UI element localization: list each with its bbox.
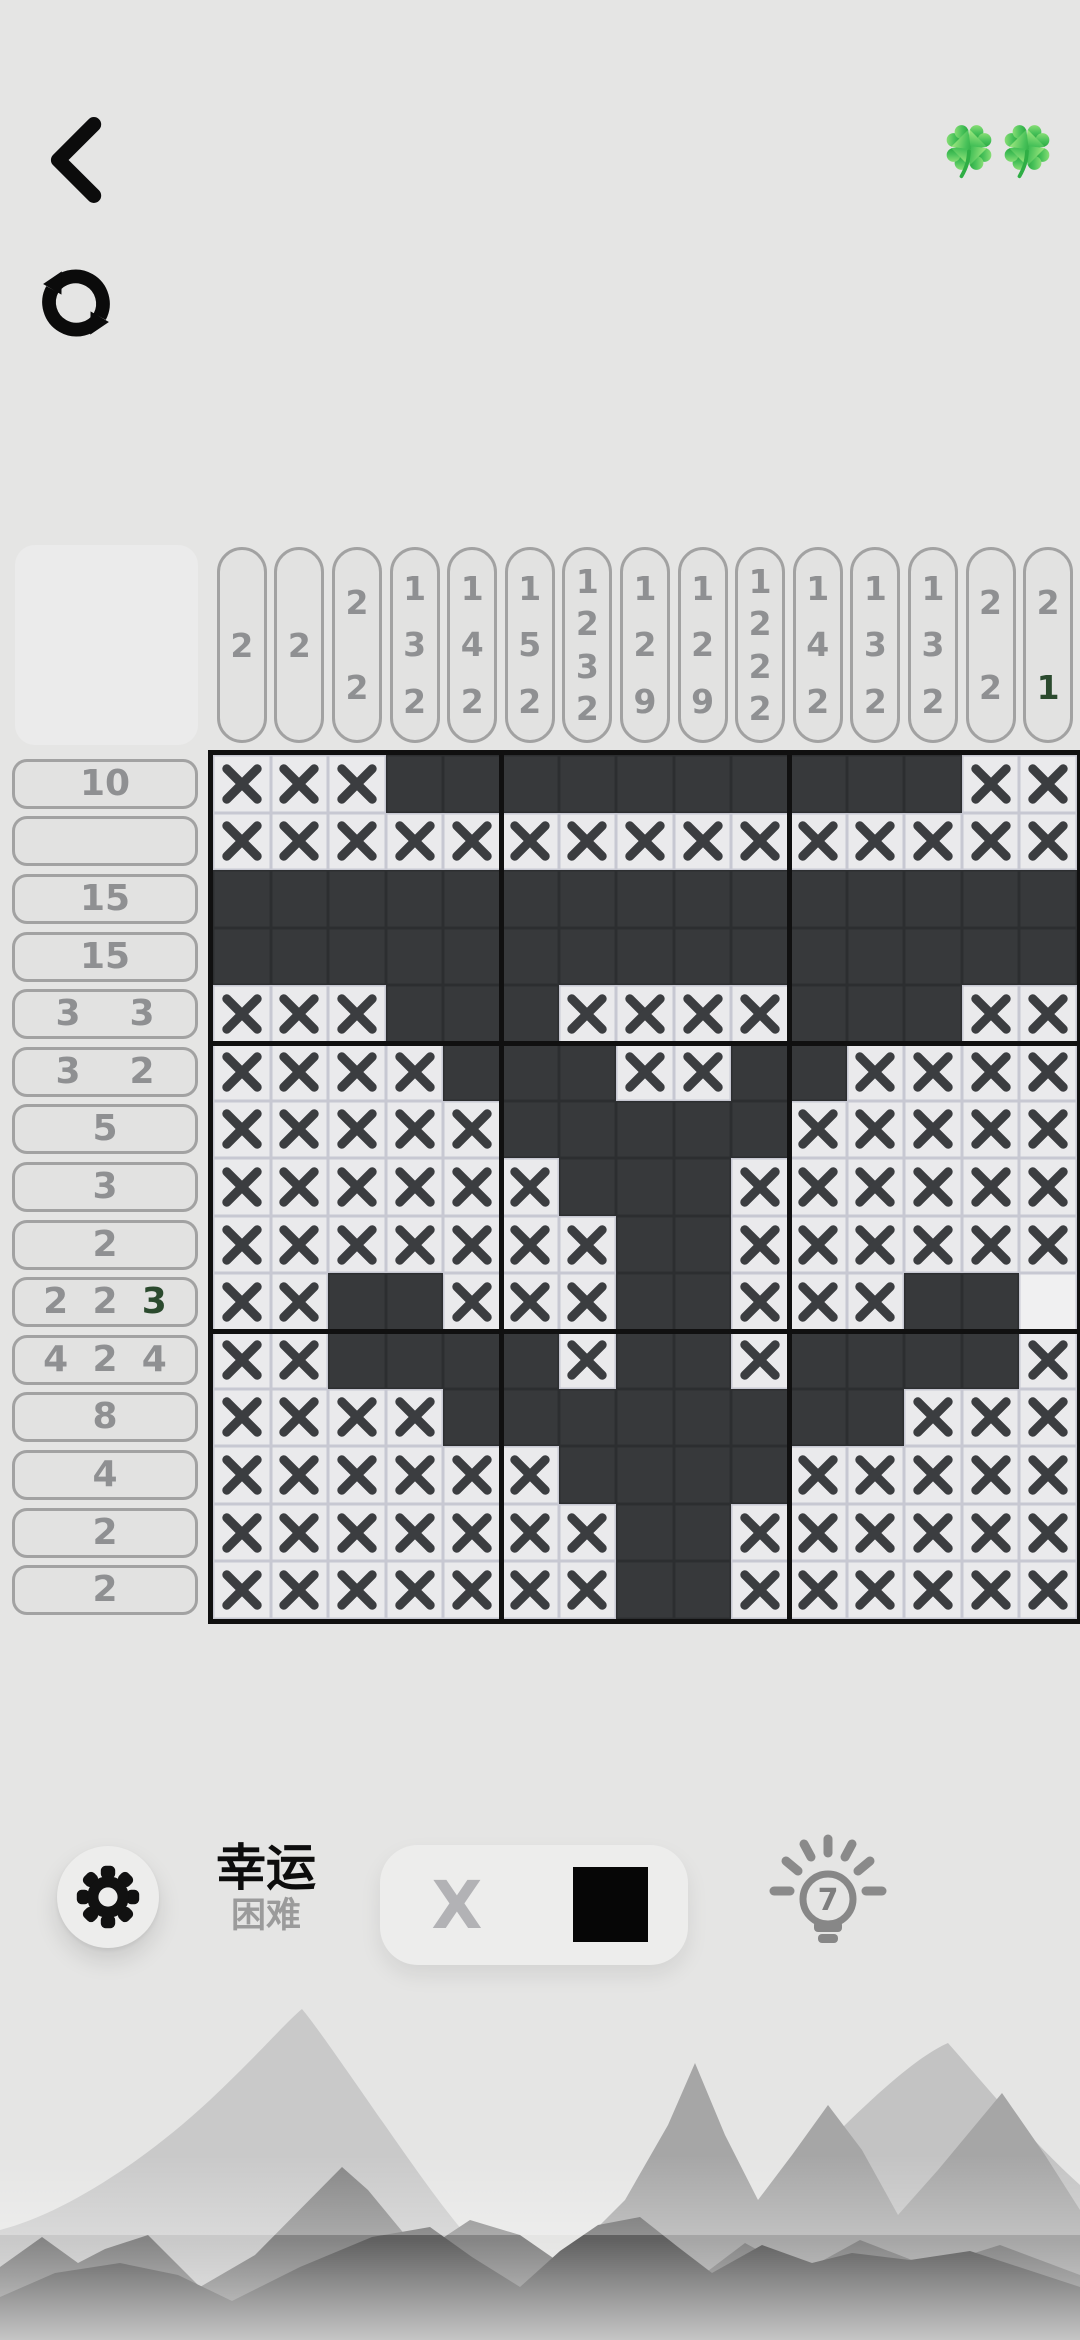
grid-cell-r13c14[interactable] [962,1446,1020,1504]
grid-cell-r1c4[interactable] [386,755,444,813]
grid-cell-r2c7[interactable] [559,813,617,871]
clue-number: 1 [518,572,541,605]
grid-cell-r1c2[interactable] [271,755,329,813]
grid-cell-r2c10[interactable] [731,813,789,871]
game-screen: 2222132142152123212912912221421321322221… [0,0,1080,2340]
x-mark-icon [1024,1566,1072,1614]
grid-cell-r10c12[interactable] [847,1273,905,1331]
grid-cell-r14c4[interactable] [386,1504,444,1562]
grid-cell-r3c14[interactable] [962,870,1020,928]
back-button[interactable] [40,116,110,206]
x-mark-icon [275,990,323,1038]
grid-cell-r8c1[interactable] [213,1158,271,1216]
x-mark-icon [506,817,554,865]
x-mark-icon [333,1451,381,1499]
grid-cell-r6c11[interactable] [789,1043,847,1101]
grid-cell-r1c8[interactable] [616,755,674,813]
x-mark-icon [448,1509,496,1557]
grid-cell-r10c11[interactable] [789,1273,847,1331]
grid-cell-r6c15[interactable] [1019,1043,1077,1101]
grid-cell-r14c11[interactable] [789,1504,847,1562]
grid-cell-r12c7[interactable] [559,1389,617,1447]
grid-cell-r8c3[interactable] [328,1158,386,1216]
grid-cell-r13c8[interactable] [616,1446,674,1504]
grid-cell-r10c14[interactable] [962,1273,1020,1331]
grid-cell-r14c7[interactable] [559,1504,617,1562]
grid-cell-r8c11[interactable] [789,1158,847,1216]
grid-cell-r6c9[interactable] [674,1043,732,1101]
x-mark-icon [448,1566,496,1614]
grid-cell-r7c8[interactable] [616,1101,674,1159]
grid-cell-r1c15[interactable] [1019,755,1077,813]
x-mark-icon [794,1509,842,1557]
grid-cell-r6c10[interactable] [731,1043,789,1101]
grid-cell-r4c14[interactable] [962,928,1020,986]
grid-cell-r12c11[interactable] [789,1389,847,1447]
grid-cell-r2c1[interactable] [213,813,271,871]
x-mark-icon [506,1163,554,1211]
grid-cell-r11c3[interactable] [328,1331,386,1389]
block-divider-v1 [499,755,504,1619]
grid-cell-r1c10[interactable] [731,755,789,813]
grid-cell-r5c2[interactable] [271,985,329,1043]
grid-cell-r4c10[interactable] [731,928,789,986]
grid-cell-r1c11[interactable] [789,755,847,813]
x-mark-icon [967,1451,1015,1499]
grid-cell-r7c5[interactable] [443,1101,501,1159]
grid-cell-r5c14[interactable] [962,985,1020,1043]
grid-cell-r15c4[interactable] [386,1561,444,1619]
grid-cell-r11c11[interactable] [789,1331,847,1389]
grid-cell-r10c10[interactable] [731,1273,789,1331]
grid-cell-r7c6[interactable] [501,1101,559,1159]
grid-cell-r10c15[interactable] [1019,1273,1077,1331]
grid-cell-r9c4[interactable] [386,1216,444,1274]
grid-cell-r13c12[interactable] [847,1446,905,1504]
grid-cell-r14c1[interactable] [213,1504,271,1562]
clue-number: 2 [403,685,426,718]
clue-number: 2 [92,1572,117,1608]
nonogram-board [208,750,1080,1624]
x-mark-icon [909,1221,957,1269]
clue-number: 2 [576,607,599,640]
grid-cell-r12c6[interactable] [501,1389,559,1447]
clue-number: 3 [864,628,887,661]
grid-cell-r7c9[interactable] [674,1101,732,1159]
grid-cell-r9c7[interactable] [559,1216,617,1274]
grid-cell-r8c15[interactable] [1019,1158,1077,1216]
grid-cell-r13c7[interactable] [559,1446,617,1504]
x-mark-icon [1024,1393,1072,1441]
grid-cell-r3c8[interactable] [616,870,674,928]
grid-cell-r11c15[interactable] [1019,1331,1077,1389]
grid-cell-r15c1[interactable] [213,1561,271,1619]
grid-cell-r15c14[interactable] [962,1561,1020,1619]
grid-cell-r8c6[interactable] [501,1158,559,1216]
clue-number: 2 [92,1342,117,1378]
grid-cell-r8c9[interactable] [674,1158,732,1216]
grid-cell-r4c12[interactable] [847,928,905,986]
grid-cell-r13c4[interactable] [386,1446,444,1504]
grid-cell-r5c4[interactable] [386,985,444,1043]
grid-cell-r9c5[interactable] [443,1216,501,1274]
grid-cell-r15c7[interactable] [559,1561,617,1619]
col-clue-7: 1232 [562,547,612,743]
grid-cell-r9c1[interactable] [213,1216,271,1274]
grid-cell-r7c11[interactable] [789,1101,847,1159]
grid-cell-r7c1[interactable] [213,1101,271,1159]
grid-cell-r6c8[interactable] [616,1043,674,1101]
grid-cell-r10c7[interactable] [559,1273,617,1331]
grid-cell-r1c7[interactable] [559,755,617,813]
block-divider-v2 [787,755,792,1619]
grid-cell-r7c14[interactable] [962,1101,1020,1159]
grid-cell-r12c1[interactable] [213,1389,271,1447]
grid-cell-r13c2[interactable] [271,1446,329,1504]
grid-cell-r4c1[interactable] [213,928,271,986]
grid-cell-r9c8[interactable] [616,1216,674,1274]
grid-cell-r5c5[interactable] [443,985,501,1043]
grid-cell-r7c15[interactable] [1019,1101,1077,1159]
grid-cell-r12c5[interactable] [443,1389,501,1447]
grid-cell-r1c12[interactable] [847,755,905,813]
grid-cell-r11c9[interactable] [674,1331,732,1389]
grid-cell-r9c2[interactable] [271,1216,329,1274]
grid-cell-r6c3[interactable] [328,1043,386,1101]
grid-cell-r9c12[interactable] [847,1216,905,1274]
grid-cell-r4c2[interactable] [271,928,329,986]
clue-number: 2 [346,671,369,704]
grid-cell-r13c10[interactable] [731,1446,789,1504]
grid-cell-r6c13[interactable] [904,1043,962,1101]
grid-cell-r5c9[interactable] [674,985,732,1043]
grid-cell-r10c3[interactable] [328,1273,386,1331]
row-clue-2 [12,816,198,866]
grid-cell-r9c10[interactable] [731,1216,789,1274]
grid-cell-r2c2[interactable] [271,813,329,871]
clue-number: 3 [55,1054,80,1090]
hint-count: 7 [818,1883,839,1918]
level-info: 幸运 困难 [196,1842,336,1935]
row-clue-5: 33 [12,989,198,1039]
fill-mode-button[interactable] [573,1867,648,1942]
grid-cell-r7c2[interactable] [271,1101,329,1159]
grid-cell-r15c2[interactable] [271,1561,329,1619]
grid-cell-r4c8[interactable] [616,928,674,986]
grid-cell-r2c5[interactable] [443,813,501,871]
grid-cell-r13c11[interactable] [789,1446,847,1504]
grid-cell-r1c14[interactable] [962,755,1020,813]
grid-cell-r15c8[interactable] [616,1561,674,1619]
lightbulb-icon: 7 [748,1833,908,1973]
x-mark-icon [967,1221,1015,1269]
grid-cell-r2c15[interactable] [1019,813,1077,871]
grid-cell-r14c12[interactable] [847,1504,905,1562]
grid-cell-r4c15[interactable] [1019,928,1077,986]
x-mark-icon [448,1278,496,1326]
x-mark-icon [967,1105,1015,1153]
grid-cell-r7c10[interactable] [731,1101,789,1159]
grid-cell-r10c2[interactable] [271,1273,329,1331]
grid-cell-r11c4[interactable] [386,1331,444,1389]
grid-cell-r5c12[interactable] [847,985,905,1043]
grid-cell-r8c12[interactable] [847,1158,905,1216]
grid-cell-r6c7[interactable] [559,1043,617,1101]
grid-cell-r11c12[interactable] [847,1331,905,1389]
grid-cell-r9c11[interactable] [789,1216,847,1274]
x-mark-icon [563,1509,611,1557]
grid-cell-r14c8[interactable] [616,1504,674,1562]
clue-number: 15 [80,881,130,917]
grid-cell-r12c2[interactable] [271,1389,329,1447]
grid-cell-r5c7[interactable] [559,985,617,1043]
grid-cell-r10c5[interactable] [443,1273,501,1331]
grid-cell-r1c5[interactable] [443,755,501,813]
grid-cell-r5c6[interactable] [501,985,559,1043]
grid-cell-r5c8[interactable] [616,985,674,1043]
grid-cell-r12c4[interactable] [386,1389,444,1447]
grid-cell-r11c6[interactable] [501,1331,559,1389]
grid-cell-r10c6[interactable] [501,1273,559,1331]
grid-cell-r12c10[interactable] [731,1389,789,1447]
grid-cell-r3c7[interactable] [559,870,617,928]
grid-cell-r4c5[interactable] [443,928,501,986]
grid-cell-r9c9[interactable] [674,1216,732,1274]
x-mark-icon [391,1163,439,1211]
grid-cell-r11c5[interactable] [443,1331,501,1389]
grid-cell-r8c10[interactable] [731,1158,789,1216]
x-mark-icon [736,1336,784,1384]
grid-cell-r14c13[interactable] [904,1504,962,1562]
grid-cell-r6c2[interactable] [271,1043,329,1101]
grid-cell-r11c1[interactable] [213,1331,271,1389]
grid-cell-r11c14[interactable] [962,1331,1020,1389]
grid-cell-r7c12[interactable] [847,1101,905,1159]
grid-cell-r12c15[interactable] [1019,1389,1077,1447]
grid-cell-r11c8[interactable] [616,1331,674,1389]
x-mark-icon [391,1509,439,1557]
grid-cell-r5c13[interactable] [904,985,962,1043]
grid-cell-r14c3[interactable] [328,1504,386,1562]
grid-cell-r11c10[interactable] [731,1331,789,1389]
x-mark-icon [275,1105,323,1153]
grid-cell-r6c12[interactable] [847,1043,905,1101]
row-clue-10: 223 [12,1277,198,1327]
x-mark-icon [679,817,727,865]
grid-cell-r6c6[interactable] [501,1043,559,1101]
hint-button[interactable]: 7 [748,1833,908,1973]
x-mark-icon [851,1278,899,1326]
grid-cell-r3c5[interactable] [443,870,501,928]
grid-cell-r3c1[interactable] [213,870,271,928]
grid-cell-r10c9[interactable] [674,1273,732,1331]
grid-cell-r5c3[interactable] [328,985,386,1043]
grid-cell-r12c12[interactable] [847,1389,905,1447]
grid-cell-r5c11[interactable] [789,985,847,1043]
grid-cell-r4c11[interactable] [789,928,847,986]
grid-cell-r11c7[interactable] [559,1331,617,1389]
grid-cell-r12c13[interactable] [904,1389,962,1447]
grid-cell-r12c14[interactable] [962,1389,1020,1447]
grid-cell-r3c13[interactable] [904,870,962,928]
row-clue-13: 4 [12,1450,198,1500]
grid-cell-r4c7[interactable] [559,928,617,986]
grid-cell-r9c15[interactable] [1019,1216,1077,1274]
grid-cell-r14c2[interactable] [271,1504,329,1562]
grid-cell-r11c2[interactable] [271,1331,329,1389]
grid-cell-r3c4[interactable] [386,870,444,928]
grid-cell-r8c5[interactable] [443,1158,501,1216]
grid-cell-r4c6[interactable] [501,928,559,986]
grid-cell-r13c5[interactable] [443,1446,501,1504]
grid-cell-r11c13[interactable] [904,1331,962,1389]
grid-cell-r10c13[interactable] [904,1273,962,1331]
x-mark-icon [967,1163,1015,1211]
grid-cell-r4c4[interactable] [386,928,444,986]
x-mark-icon [275,1336,323,1384]
grid-cell-r8c14[interactable] [962,1158,1020,1216]
clue-number: 1 [1037,671,1060,704]
clue-number: 5 [518,628,541,661]
grid-cell-r3c6[interactable] [501,870,559,928]
grid-cell-r13c3[interactable] [328,1446,386,1504]
grid-cell-r7c13[interactable] [904,1101,962,1159]
grid-cell-r8c4[interactable] [386,1158,444,1216]
x-mark-icon [275,1048,323,1096]
grid-cell-r7c3[interactable] [328,1101,386,1159]
x-mark-icon [218,1221,266,1269]
grid-cell-r15c3[interactable] [328,1561,386,1619]
grid-cell-r3c3[interactable] [328,870,386,928]
grid-cell-r3c2[interactable] [271,870,329,928]
x-mark-icon [736,1278,784,1326]
x-mark-icon [333,760,381,808]
grid-cell-r3c10[interactable] [731,870,789,928]
grid-cell-r1c1[interactable] [213,755,271,813]
grid-cell-r4c13[interactable] [904,928,962,986]
grid-cell-r14c14[interactable] [962,1504,1020,1562]
row-clue-12: 8 [12,1392,198,1442]
grid-cell-r15c15[interactable] [1019,1561,1077,1619]
grid-cell-r15c5[interactable] [443,1561,501,1619]
mode-toggle[interactable]: X [380,1845,688,1965]
grid-cell-r2c3[interactable] [328,813,386,871]
grid-cell-r14c5[interactable] [443,1504,501,1562]
grid-cell-r6c5[interactable] [443,1043,501,1101]
grid-cell-r5c10[interactable] [731,985,789,1043]
grid-cell-r13c15[interactable] [1019,1446,1077,1504]
x-mark-icon [218,1393,266,1441]
grid-cell-r6c14[interactable] [962,1043,1020,1101]
grid-cell-r13c1[interactable] [213,1446,271,1504]
grid-cell-r15c12[interactable] [847,1561,905,1619]
grid-cell-r15c6[interactable] [501,1561,559,1619]
grid-cell-r10c1[interactable] [213,1273,271,1331]
x-mark-icon [967,1048,1015,1096]
grid-cell-r12c9[interactable] [674,1389,732,1447]
grid-cell-r14c15[interactable] [1019,1504,1077,1562]
grid-cell-r1c6[interactable] [501,755,559,813]
x-mark-icon [851,1163,899,1211]
x-mark-icon [736,1509,784,1557]
grid-cell-r1c3[interactable] [328,755,386,813]
grid-cell-r14c6[interactable] [501,1504,559,1562]
x-mark-icon [333,1221,381,1269]
grid-cell-r9c14[interactable] [962,1216,1020,1274]
grid-cell-r14c9[interactable] [674,1504,732,1562]
grid-cell-r7c4[interactable] [386,1101,444,1159]
clue-number: 2 [921,685,944,718]
grid-cell-r5c15[interactable] [1019,985,1077,1043]
grid-cell-r8c7[interactable] [559,1158,617,1216]
grid-cell-r3c12[interactable] [847,870,905,928]
grid-cell-r3c9[interactable] [674,870,732,928]
grid-cell-r13c13[interactable] [904,1446,962,1504]
grid-cell-r13c9[interactable] [674,1446,732,1504]
grid-cell-r9c6[interactable] [501,1216,559,1274]
grid-cell-r3c11[interactable] [789,870,847,928]
x-mark-icon [736,817,784,865]
grid-cell-r12c8[interactable] [616,1389,674,1447]
clue-number: 2 [461,685,484,718]
grid-cell-r2c4[interactable] [386,813,444,871]
grid-cell-r1c13[interactable] [904,755,962,813]
x-mode-button[interactable]: X [380,1845,534,1965]
settings-button[interactable] [57,1846,159,1948]
x-mark-icon [1024,990,1072,1038]
x-mark-icon [333,1509,381,1557]
clue-number: 10 [80,766,130,802]
grid-cell-r7c7[interactable] [559,1101,617,1159]
grid-cell-r2c12[interactable] [847,813,905,871]
grid-cell-r6c4[interactable] [386,1043,444,1101]
clue-number: 2 [92,1227,117,1263]
grid-cell-r2c14[interactable] [962,813,1020,871]
grid-cell-r1c9[interactable] [674,755,732,813]
grid-cell-r2c13[interactable] [904,813,962,871]
grid-cell-r6c1[interactable] [213,1043,271,1101]
grid-cell-r8c8[interactable] [616,1158,674,1216]
grid-cell-r15c13[interactable] [904,1561,962,1619]
grid-cell-r5c1[interactable] [213,985,271,1043]
grid-cell-r15c10[interactable] [731,1561,789,1619]
clue-number: 2 [806,685,829,718]
grid-cell-r9c3[interactable] [328,1216,386,1274]
grid-cell-r2c8[interactable] [616,813,674,871]
grid-cell-r2c9[interactable] [674,813,732,871]
x-mark-icon [218,1278,266,1326]
grid-cell-r2c6[interactable] [501,813,559,871]
grid-cell-r13c6[interactable] [501,1446,559,1504]
x-mark-icon [967,817,1015,865]
grid-cell-r15c9[interactable] [674,1561,732,1619]
x-mark-icon [736,1163,784,1211]
grid-cell-r10c4[interactable] [386,1273,444,1331]
grid-cell-r15c11[interactable] [789,1561,847,1619]
grid-cell-r4c9[interactable] [674,928,732,986]
grid-cell-r8c2[interactable] [271,1158,329,1216]
grid-cell-r12c3[interactable] [328,1389,386,1447]
grid-cell-r9c13[interactable] [904,1216,962,1274]
restart-button[interactable] [36,264,116,344]
grid-cell-r3c15[interactable] [1019,870,1077,928]
grid-cell-r10c8[interactable] [616,1273,674,1331]
clue-number: 2 [1037,586,1060,619]
grid-cell-r2c11[interactable] [789,813,847,871]
grid-cell-r4c3[interactable] [328,928,386,986]
grid-cell-r14c10[interactable] [731,1504,789,1562]
grid-cell-r8c13[interactable] [904,1158,962,1216]
